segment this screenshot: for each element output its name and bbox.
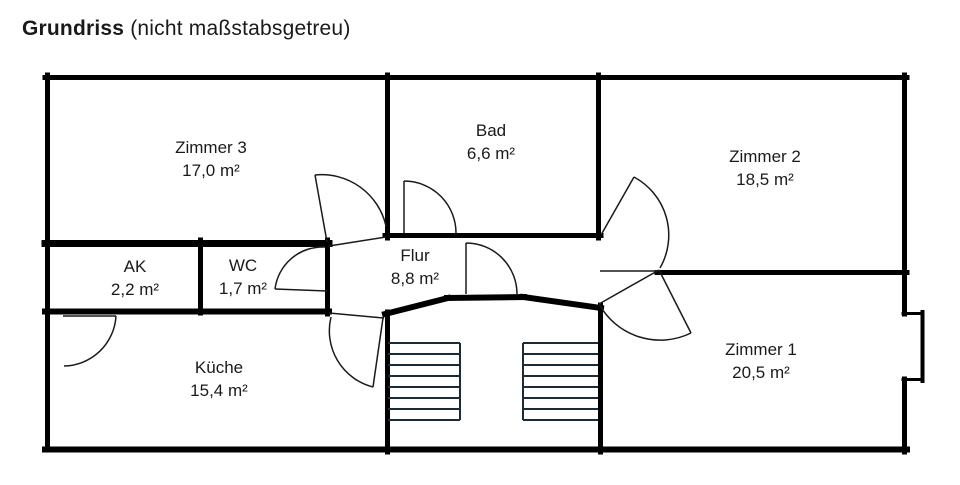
room-area: 20,5 m² bbox=[725, 361, 797, 384]
floorplan-drawing bbox=[0, 0, 960, 485]
room-name: Zimmer 1 bbox=[725, 338, 797, 361]
stairs-left-flight bbox=[388, 343, 460, 420]
room-name: Zimmer 3 bbox=[175, 136, 247, 159]
door-arc-zimmer3 bbox=[315, 175, 386, 242]
room-label-wc: WC 1,7 m² bbox=[219, 254, 267, 300]
room-name: WC bbox=[219, 254, 267, 277]
stairs-right-flight bbox=[523, 343, 598, 420]
room-label-flur: Flur 8,8 m² bbox=[391, 244, 439, 290]
door-arc-flur bbox=[466, 243, 517, 294]
door-arc-ak bbox=[64, 316, 116, 366]
room-label-ak: AK 2,2 m² bbox=[111, 255, 159, 301]
door-arc-wc bbox=[275, 247, 327, 291]
room-area: 2,2 m² bbox=[111, 278, 159, 301]
room-name: Zimmer 2 bbox=[729, 145, 801, 168]
door-arc-kueche-flur bbox=[329, 317, 383, 387]
room-area: 8,8 m² bbox=[391, 267, 439, 290]
room-name: AK bbox=[111, 255, 159, 278]
room-area: 18,5 m² bbox=[729, 168, 801, 191]
room-area: 15,4 m² bbox=[190, 379, 248, 402]
room-label-zimmer1: Zimmer 1 20,5 m² bbox=[725, 338, 797, 384]
room-name: Küche bbox=[190, 356, 248, 379]
floorplan-page: Grundriss (nicht maßstabsgetreu) bbox=[0, 0, 960, 485]
room-label-kueche: Küche 15,4 m² bbox=[190, 356, 248, 402]
door-arc-zimmer2 bbox=[601, 177, 669, 268]
room-name: Bad bbox=[467, 119, 515, 142]
room-label-zimmer3: Zimmer 3 17,0 m² bbox=[175, 136, 247, 182]
door-arc-bad bbox=[404, 181, 456, 233]
room-area: 1,7 m² bbox=[219, 277, 267, 300]
room-area: 6,6 m² bbox=[467, 142, 515, 165]
room-label-zimmer2: Zimmer 2 18,5 m² bbox=[729, 145, 801, 191]
room-label-bad: Bad 6,6 m² bbox=[467, 119, 515, 165]
room-name: Flur bbox=[391, 244, 439, 267]
room-area: 17,0 m² bbox=[175, 159, 247, 182]
door-arc-zimmer1 bbox=[599, 270, 691, 340]
